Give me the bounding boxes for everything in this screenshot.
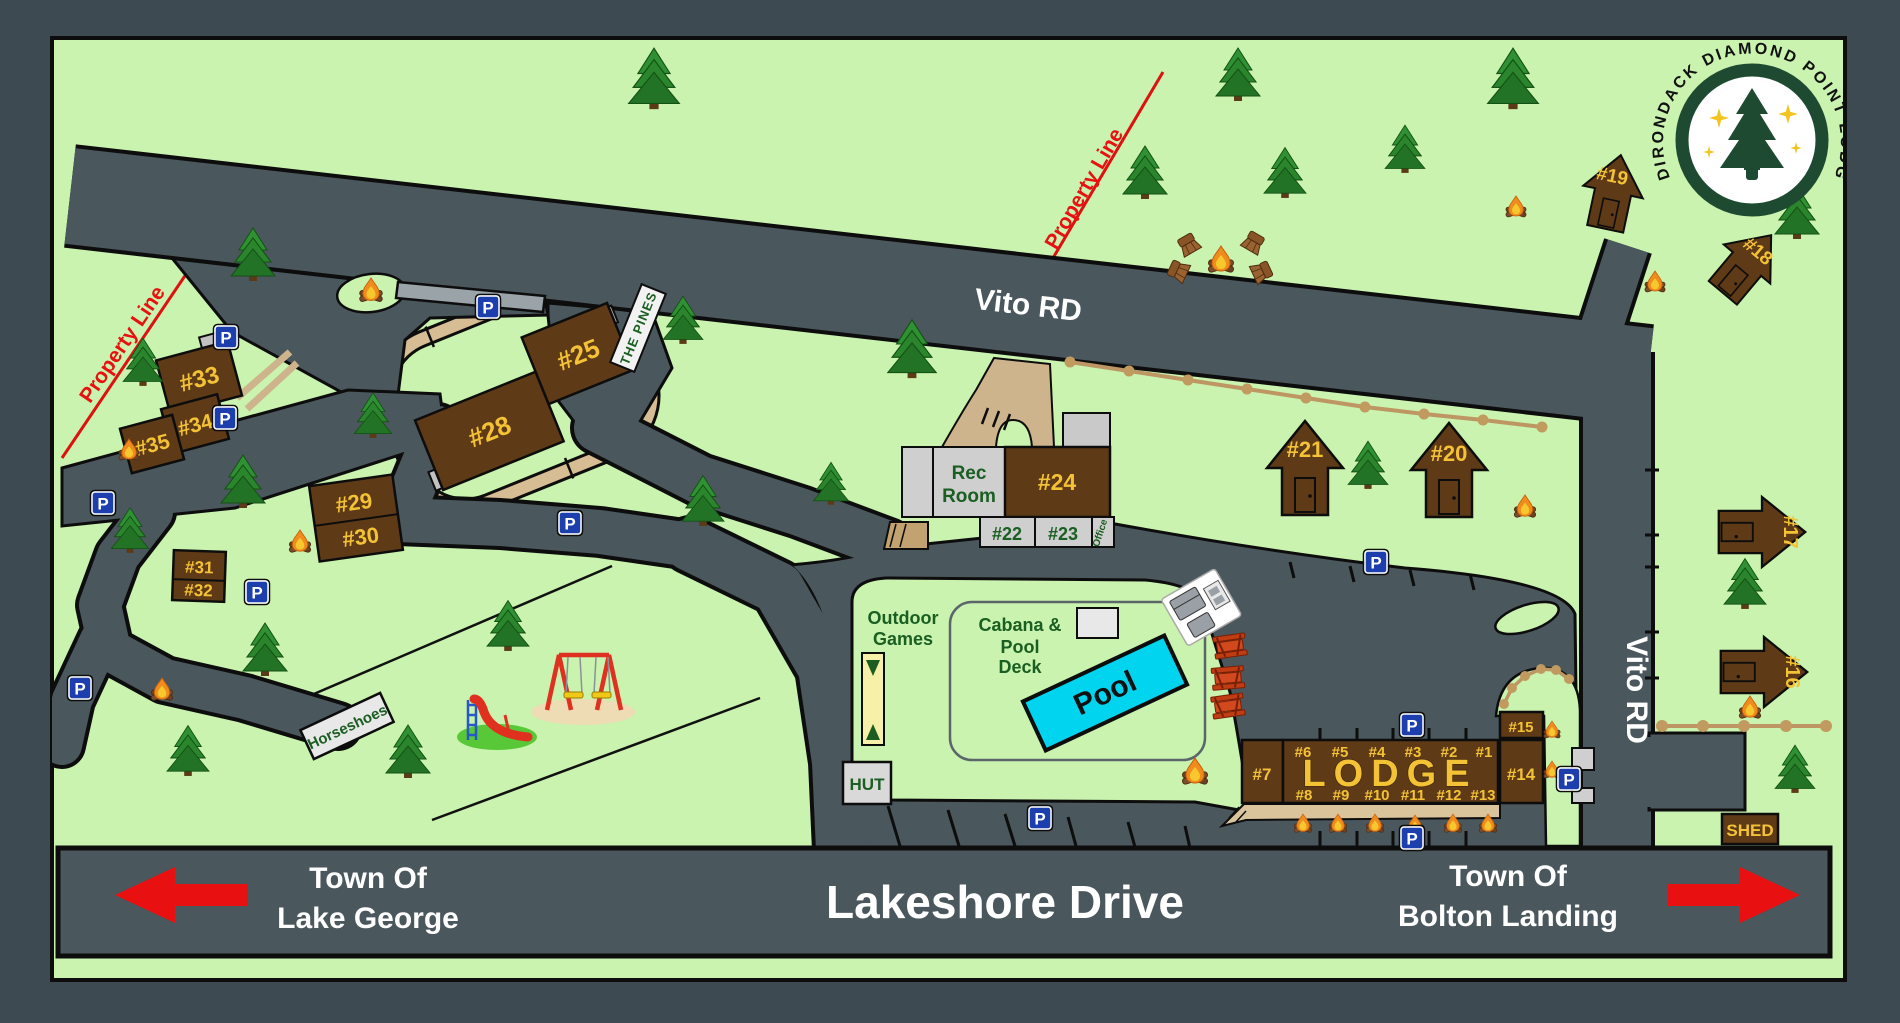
cabin-20-label: #20 xyxy=(1431,441,1468,466)
cabin19-driveway xyxy=(1598,246,1628,338)
unit-10-label: #10 xyxy=(1364,787,1389,804)
rec-room-label-1: Rec xyxy=(952,463,987,484)
vito-rd-side-label: Vito RD xyxy=(1620,636,1653,744)
town-of-left-label: Town Of xyxy=(309,862,428,895)
cabin-23-label: #23 xyxy=(1048,524,1078,544)
unit-6-label: #6 xyxy=(1295,744,1312,761)
unit-15-label: #15 xyxy=(1508,719,1533,736)
hut-label: HUT xyxy=(850,775,886,794)
cabin-29-label: #29 xyxy=(334,488,374,518)
unit-4-label: #4 xyxy=(1369,744,1386,761)
swing-seat xyxy=(592,692,611,698)
rec-west-wing xyxy=(902,447,933,517)
lake-george-label: Lake George xyxy=(277,902,459,935)
cabana-label-1: Cabana & xyxy=(978,615,1061,635)
outdoor-games-label-1: Outdoor xyxy=(868,608,939,628)
map-canvas: P xyxy=(0,0,1900,1023)
unit-12-label: #12 xyxy=(1436,787,1461,804)
bolton-landing-label: Bolton Landing xyxy=(1398,900,1618,933)
unit-9-label: #9 xyxy=(1333,787,1350,804)
town-of-right-label: Town Of xyxy=(1449,860,1568,893)
unit-11-label: #11 xyxy=(1401,787,1425,804)
rec-room-label-2: Room xyxy=(942,486,996,507)
cabin-30-label: #30 xyxy=(341,522,381,552)
cabin-21-label: #21 xyxy=(1287,437,1324,462)
property-map: P xyxy=(0,0,1900,1023)
cabin-17-label: #17 xyxy=(1779,515,1801,548)
shed: SHED xyxy=(1722,814,1778,844)
outdoor-games-label-2: Games xyxy=(873,629,933,649)
hut: HUT xyxy=(843,762,891,804)
shed-label: SHED xyxy=(1726,821,1773,840)
cabins-29-30: #29 #30 xyxy=(309,475,403,562)
cabin-16-label: #16 xyxy=(1781,655,1803,688)
unit-5-label: #5 xyxy=(1332,744,1349,761)
unit-13-label: #13 xyxy=(1470,787,1495,804)
shed-driveway xyxy=(1649,733,1745,810)
unit-1-label: #1 xyxy=(1476,744,1493,761)
cabana-building xyxy=(1077,608,1118,638)
cabana-label-2: Pool xyxy=(1001,637,1040,657)
unit-3-label: #3 xyxy=(1405,744,1422,761)
unit-8-label: #8 xyxy=(1296,787,1313,804)
rec-annex xyxy=(1063,413,1110,447)
shed-driveway-join xyxy=(1638,737,1654,807)
cabin-32-label: #32 xyxy=(184,581,213,601)
cabins-31-32: #31 #32 xyxy=(172,550,226,602)
unit-14-label: #14 xyxy=(1507,765,1536,784)
cabin-22-label: #22 xyxy=(992,524,1022,544)
unit-2-label: #2 xyxy=(1441,744,1458,761)
cabin-31-label: #31 xyxy=(185,558,214,578)
lakeshore-drive-label: Lakeshore Drive xyxy=(826,876,1184,928)
swing-seat xyxy=(564,692,583,698)
cabana-label-3: Deck xyxy=(998,657,1042,677)
cabin-24-label: #24 xyxy=(1038,469,1077,495)
unit-7-label: #7 xyxy=(1253,765,1272,784)
